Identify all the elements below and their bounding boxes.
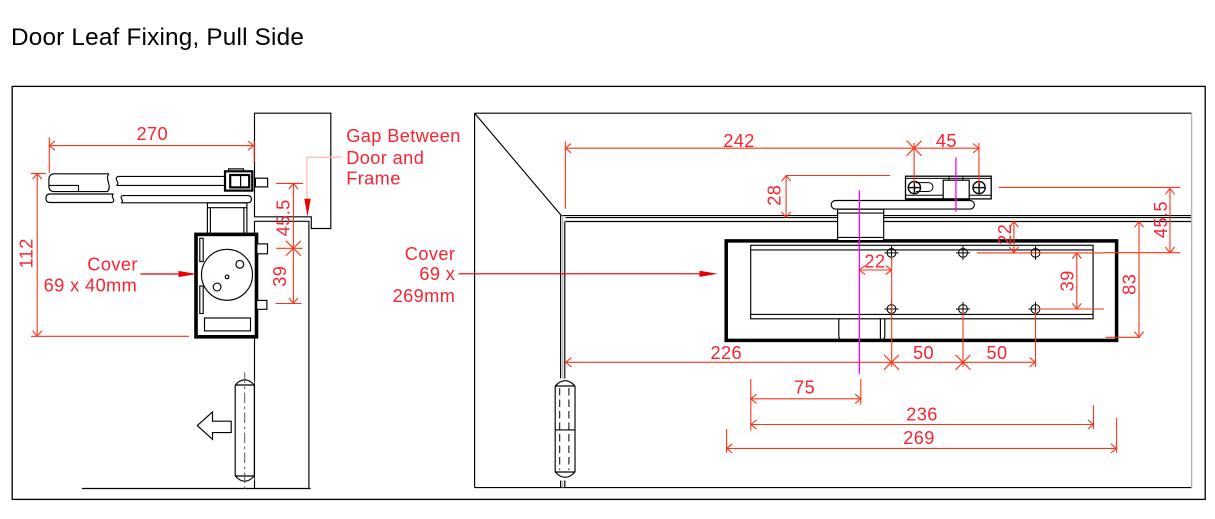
svg-text:69 x: 69 x	[419, 264, 455, 284]
svg-text:Cover: Cover	[87, 254, 138, 274]
svg-text:45.5: 45.5	[1151, 201, 1171, 238]
svg-text:Frame: Frame	[346, 169, 401, 189]
svg-text:45: 45	[936, 131, 957, 151]
svg-text:69 x 40mm: 69 x 40mm	[44, 275, 138, 295]
svg-text:269mm: 269mm	[393, 286, 456, 306]
svg-text:Gap Between: Gap Between	[346, 126, 461, 146]
svg-text:22: 22	[864, 252, 885, 272]
svg-text:226: 226	[711, 343, 743, 363]
svg-text:50: 50	[913, 343, 934, 363]
svg-text:Door Leaf Fixing, Pull Side: Door Leaf Fixing, Pull Side	[11, 24, 304, 51]
svg-text:Cover: Cover	[405, 244, 456, 264]
svg-text:112: 112	[16, 238, 36, 268]
svg-text:22: 22	[995, 224, 1015, 245]
svg-text:45.5: 45.5	[274, 199, 294, 236]
svg-text:270: 270	[137, 124, 169, 144]
svg-text:236: 236	[906, 404, 938, 424]
svg-text:242: 242	[723, 131, 755, 151]
svg-text:39: 39	[1058, 270, 1078, 291]
svg-text:75: 75	[794, 378, 815, 398]
svg-text:50: 50	[986, 343, 1007, 363]
svg-text:Door and: Door and	[346, 148, 424, 168]
svg-text:269: 269	[903, 428, 935, 448]
svg-text:28: 28	[765, 185, 785, 206]
svg-text:83: 83	[1120, 274, 1140, 295]
svg-text:39: 39	[270, 266, 290, 287]
